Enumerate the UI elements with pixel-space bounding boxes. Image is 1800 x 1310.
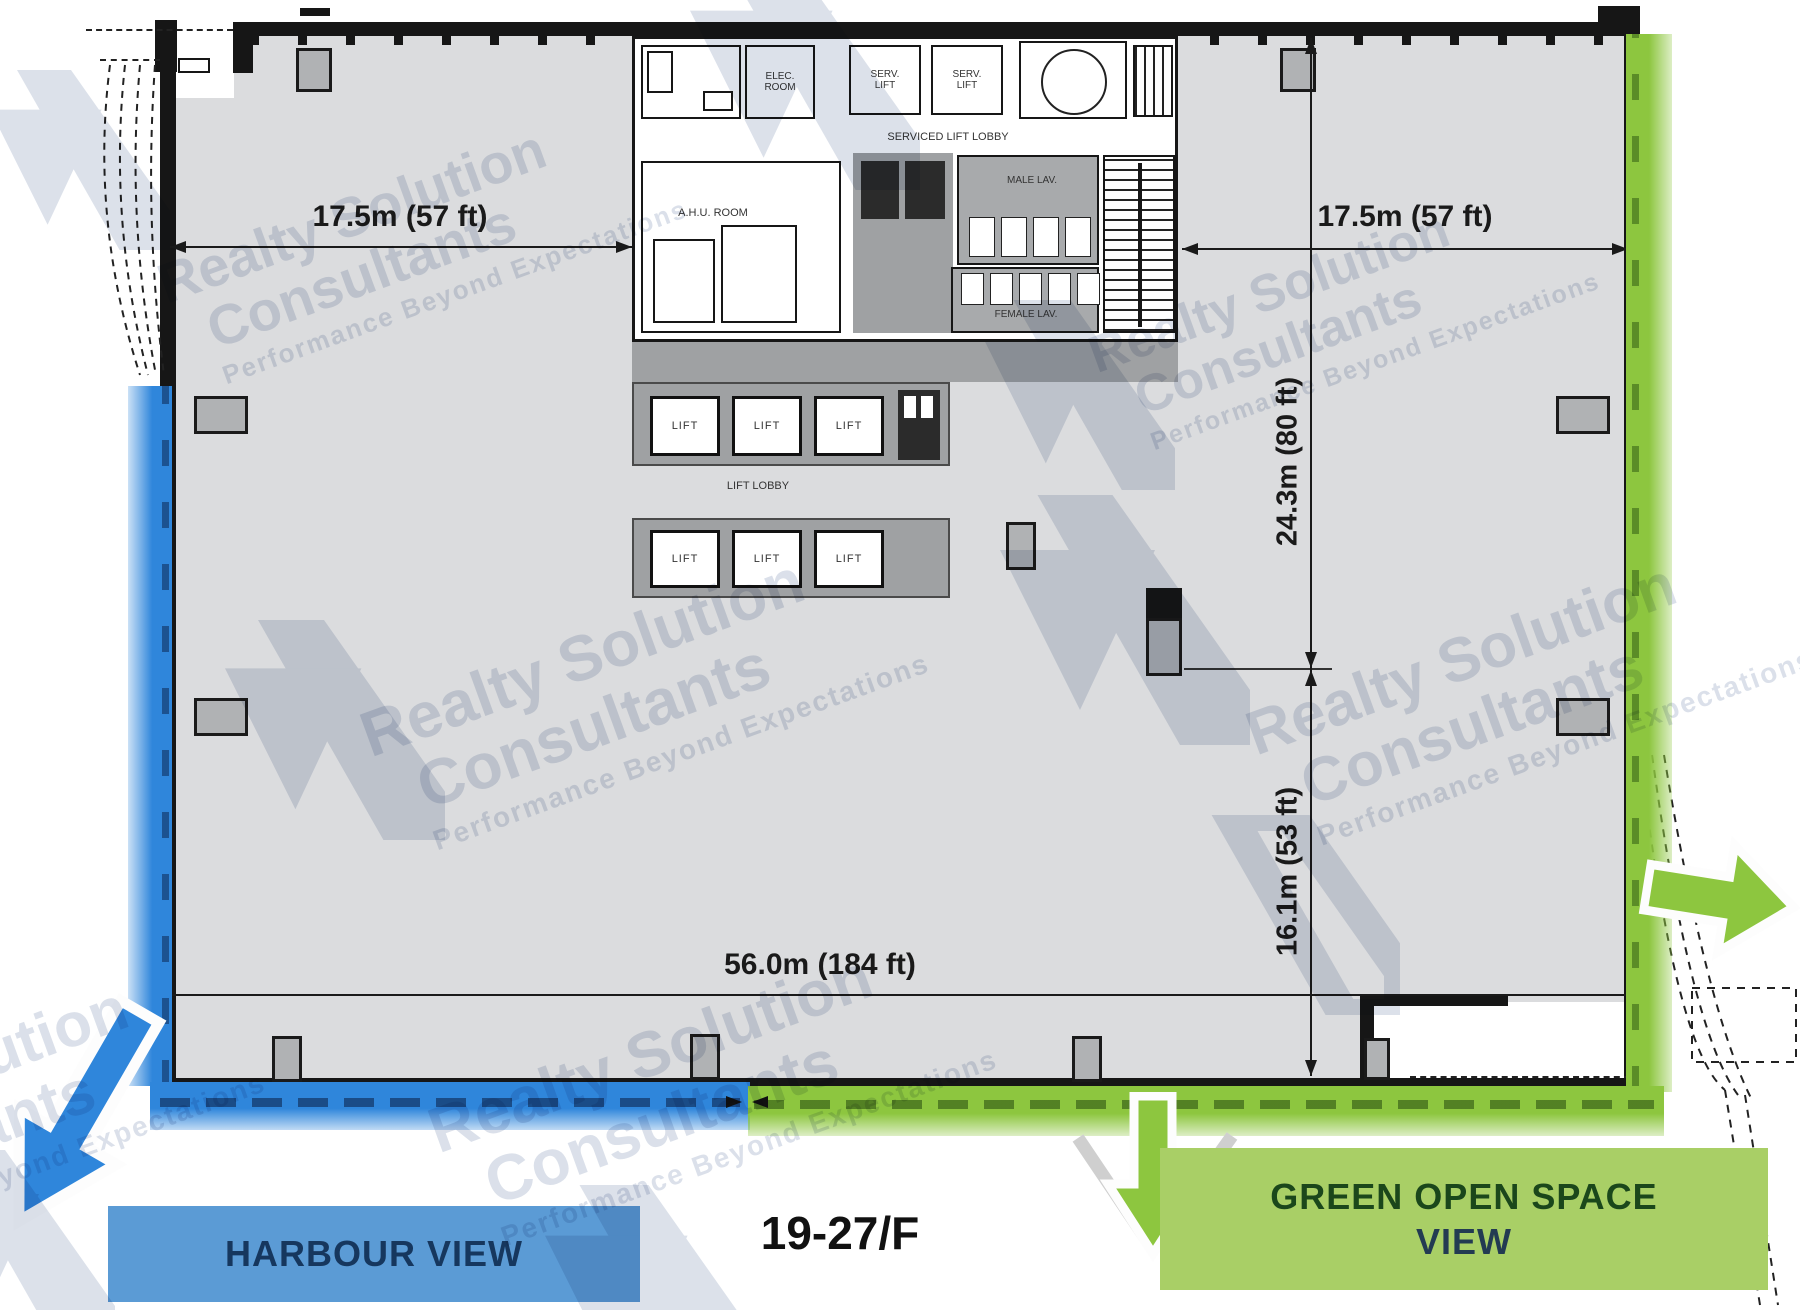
ahu-unit (653, 239, 715, 323)
column (272, 1036, 302, 1082)
watermark-logo (690, 0, 920, 190)
male-lavatory: MALE LAV. (957, 155, 1099, 265)
green-open-space-label-box: GREEN OPEN SPACE VIEW (1160, 1148, 1768, 1290)
arrowhead (1182, 243, 1198, 255)
circular-stair-room (1019, 41, 1127, 119)
floor-plan-canvas: ELEC.ROOM SERV.LIFT SERV.LIFT SERVICED L… (0, 0, 1800, 1310)
ahu-unit (721, 225, 797, 323)
lift-car: LIFT (650, 396, 720, 456)
top-tick-detail (300, 8, 330, 16)
bottom-right-notch (1374, 1002, 1628, 1078)
top-left-corner-block (233, 25, 253, 73)
arrowhead (1305, 1060, 1317, 1076)
service-lift-2-label: SERV.LIFT (953, 69, 982, 92)
service-lift-2: SERV.LIFT (931, 45, 1003, 115)
lift-lobby-label: LIFT LOBBY (688, 480, 828, 493)
column (1072, 1036, 1102, 1082)
green-open-space-arrow-right (1632, 820, 1800, 978)
stair-top-right (1133, 45, 1173, 117)
watermark-logo (1000, 495, 1250, 745)
lift-car: LIFT (732, 396, 802, 456)
top-right-corner-block (1598, 6, 1640, 36)
fire-shaft (898, 390, 940, 460)
column (1364, 1038, 1390, 1080)
male-lavatory-label: MALE LAV. (987, 175, 1077, 187)
column (296, 48, 332, 92)
circular-stair (1041, 49, 1107, 115)
green-open-space-label-line2: VIEW (1416, 1219, 1512, 1264)
green-open-space-label-line1: GREEN OPEN SPACE (1270, 1174, 1657, 1219)
watermark-logo (0, 70, 170, 250)
top-wall (233, 22, 1632, 36)
entrance-detail (178, 58, 210, 73)
setback-dash-top (86, 29, 233, 31)
notch-dash (1410, 1076, 1630, 1078)
column (1556, 396, 1610, 434)
male-stalls (969, 217, 1091, 257)
column (194, 396, 248, 434)
arrowhead (1305, 652, 1317, 668)
store-fixture (647, 51, 673, 93)
lift-car: LIFT (814, 396, 884, 456)
arrowhead (1305, 38, 1317, 54)
